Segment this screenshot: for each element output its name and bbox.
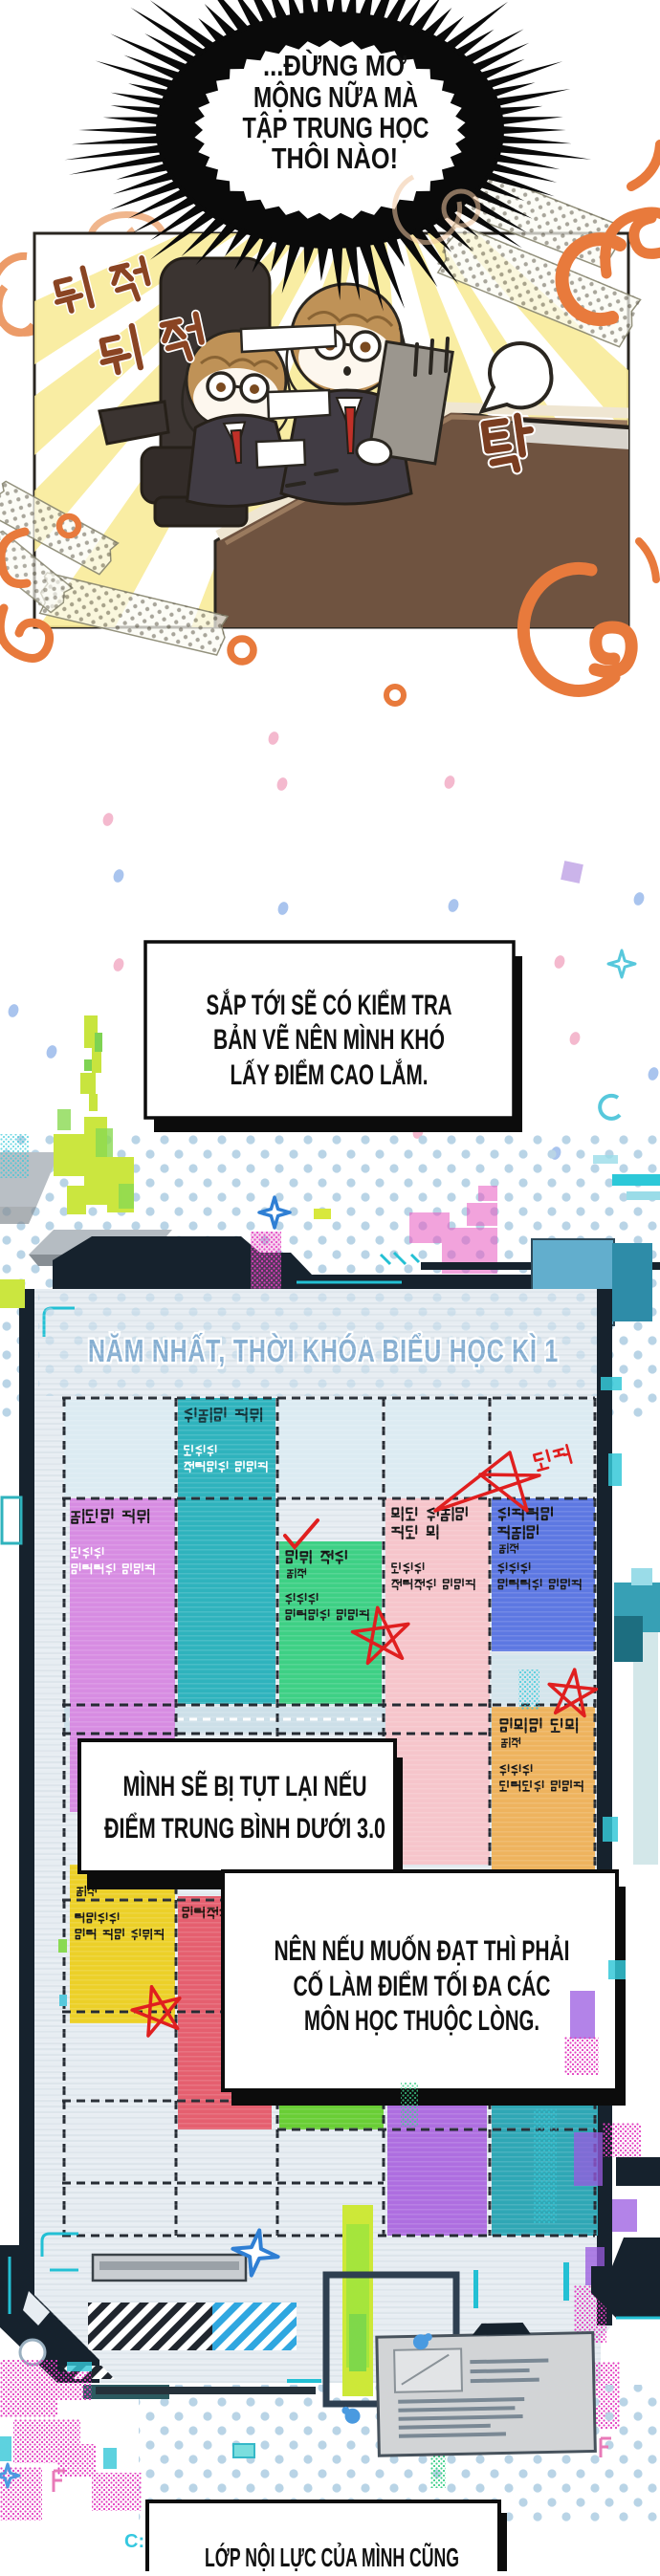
svg-text:MÌNH SẼ BỊ TỤT LẠI NẾU: MÌNH SẼ BỊ TỤT LẠI NẾU (123, 1770, 367, 1802)
svg-text:BẢN VẼ NÊN MÌNH KHÓ: BẢN VẼ NÊN MÌNH KHÓ (213, 1023, 445, 1056)
svg-text:MỘNG NỮA MÀ: MỘNG NỮA MÀ (253, 79, 418, 114)
svg-text:LẤY ĐIỂM CAO LẮM.: LẤY ĐIỂM CAO LẮM. (231, 1059, 429, 1091)
svg-text:C:: C: (124, 2531, 144, 2552)
svg-text:ĐIỂM TRUNG BÌNH DƯỚI 3.0: ĐIỂM TRUNG BÌNH DƯỚI 3.0 (104, 1812, 385, 1845)
svg-text:TẬP TRUNG HỌC: TẬP TRUNG HỌC (243, 110, 429, 144)
svg-text:THÔI NÀO!: THÔI NÀO! (272, 141, 398, 175)
svg-text:LỚP NỘI LỰC CỦA MÌNH CŨNG: LỚP NỘI LỰC CỦA MÌNH CŨNG (205, 2542, 459, 2571)
svg-text:MÔN HỌC THUỘC LÒNG.: MÔN HỌC THUỘC LÒNG. (304, 2004, 539, 2037)
svg-text:SẮP TỚI SẼ CÓ KIỂM TRA: SẮP TỚI SẼ CÓ KIỂM TRA (207, 989, 452, 1021)
svg-text:CỐ LÀM ĐIỂM TỐI ĐA CÁC: CỐ LÀM ĐIỂM TỐI ĐA CÁC (294, 1970, 551, 2002)
svg-text:NÊN NẾU MUỐN ĐẠT THÌ PHẢI: NÊN NẾU MUỐN ĐẠT THÌ PHẢI (275, 1934, 570, 1967)
svg-text:...ĐỪNG MƠ: ...ĐỪNG MƠ (263, 48, 407, 82)
